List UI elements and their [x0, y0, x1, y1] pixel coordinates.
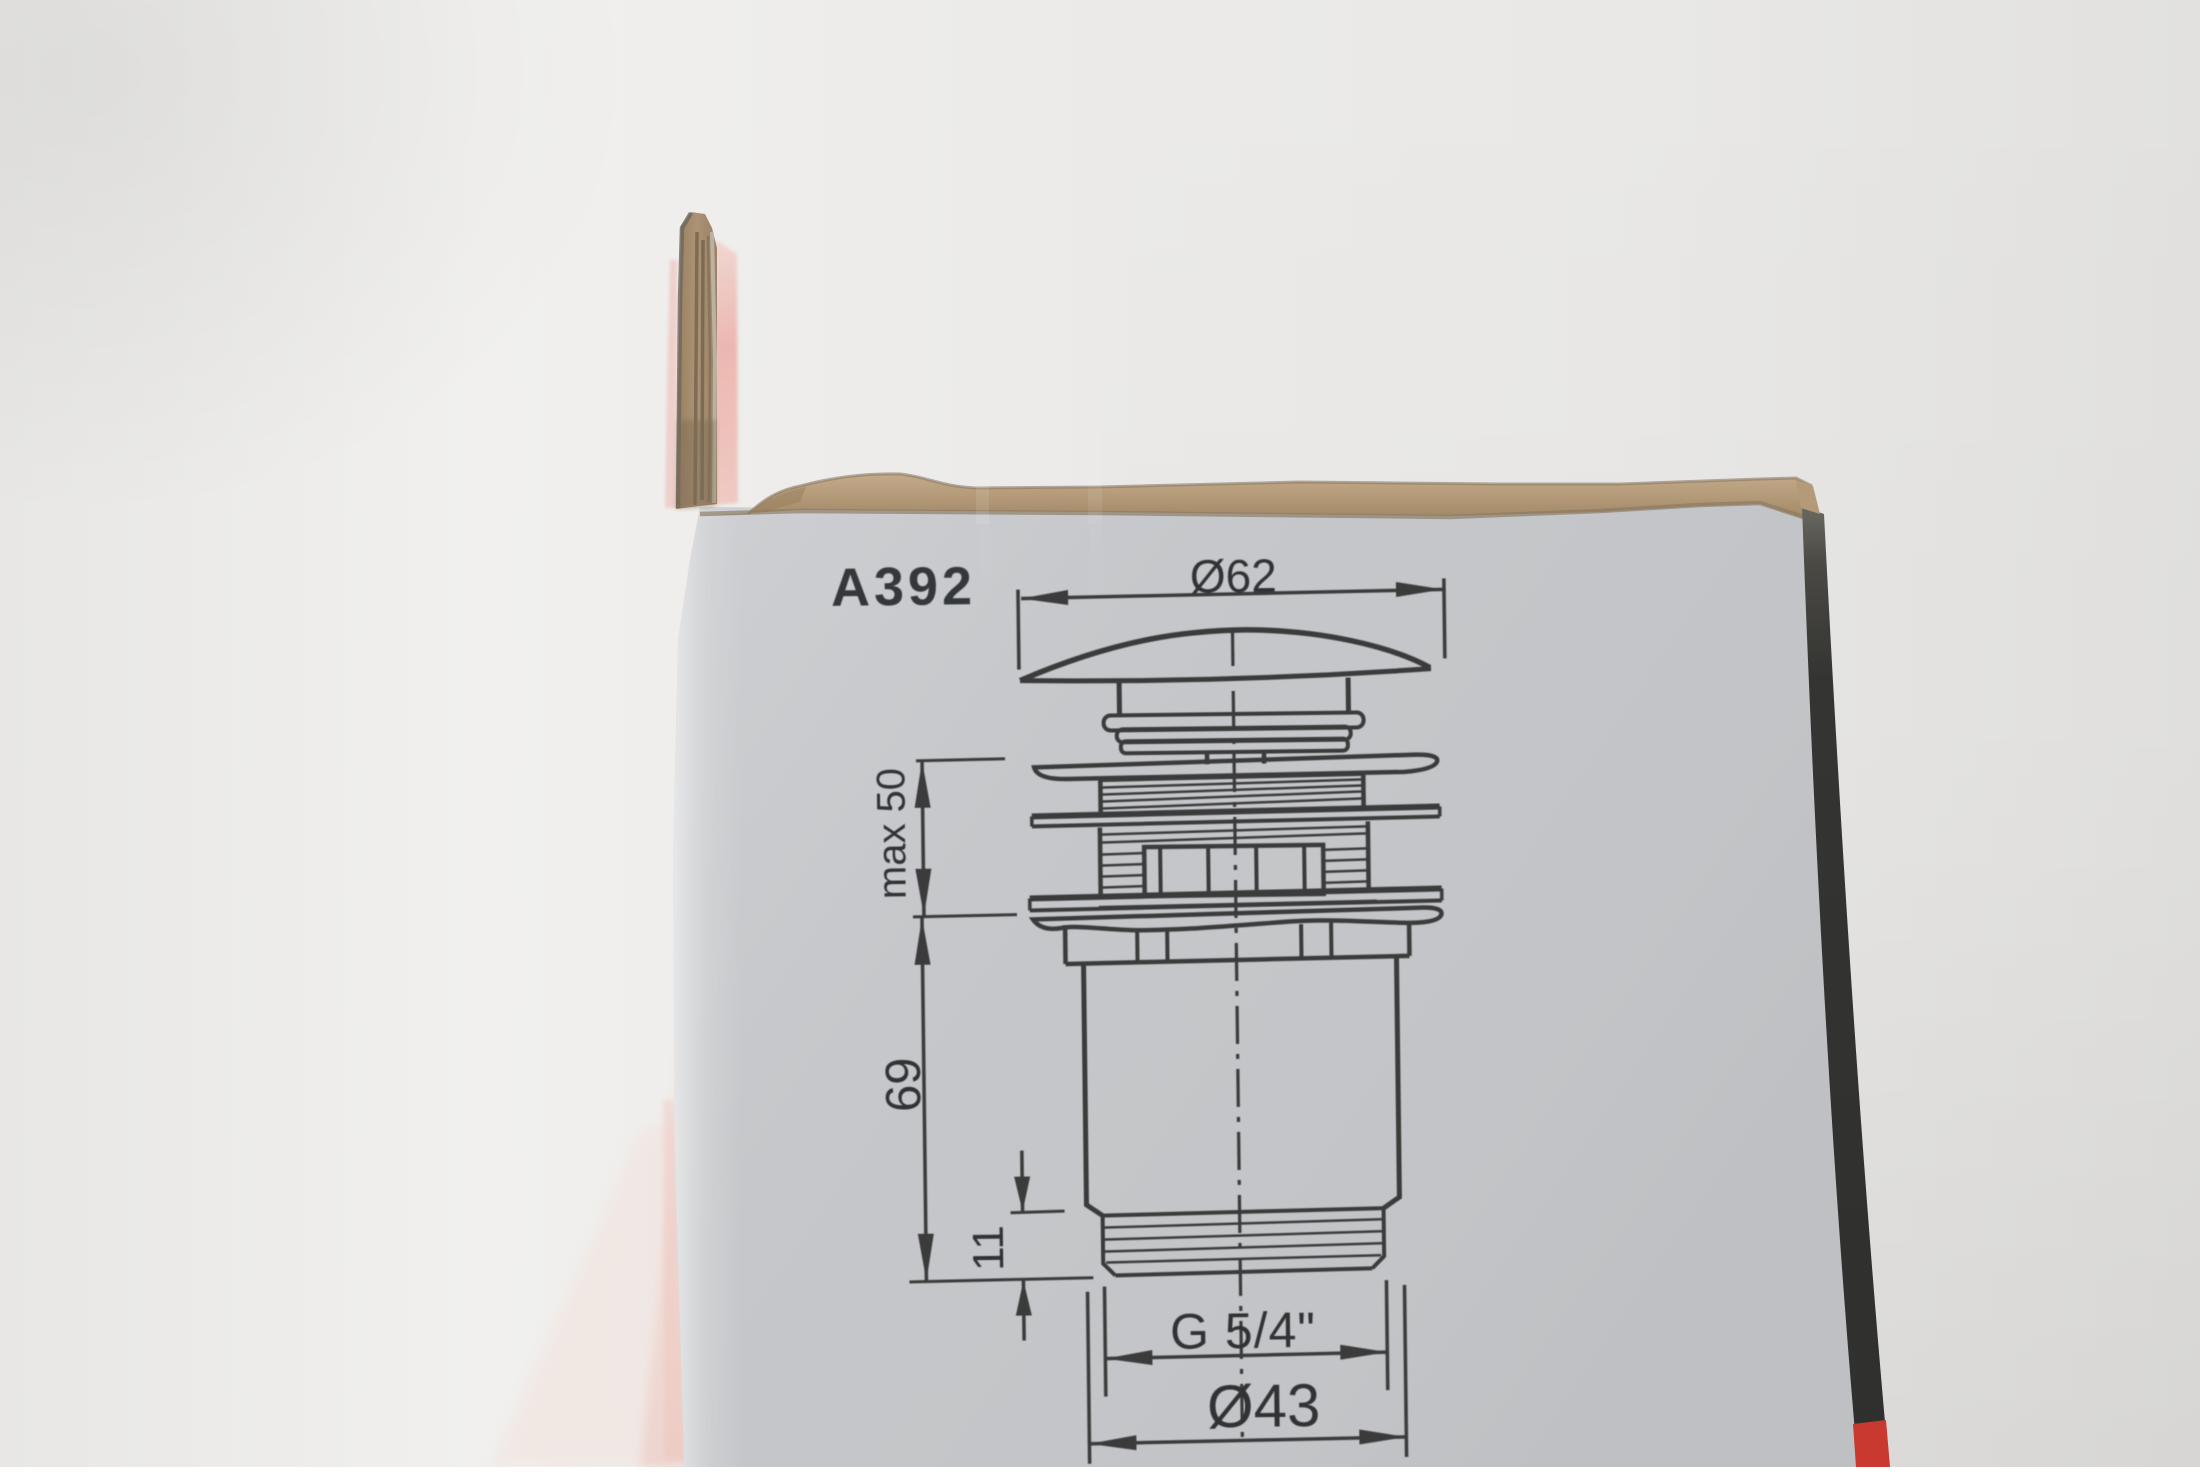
svg-text:A392: A392: [831, 556, 977, 618]
svg-text:Ø43: Ø43: [1207, 1372, 1321, 1440]
svg-text:G 5/4": G 5/4": [1170, 1302, 1317, 1360]
svg-text:11: 11: [964, 1225, 1014, 1271]
svg-text:max 50: max 50: [869, 768, 915, 900]
